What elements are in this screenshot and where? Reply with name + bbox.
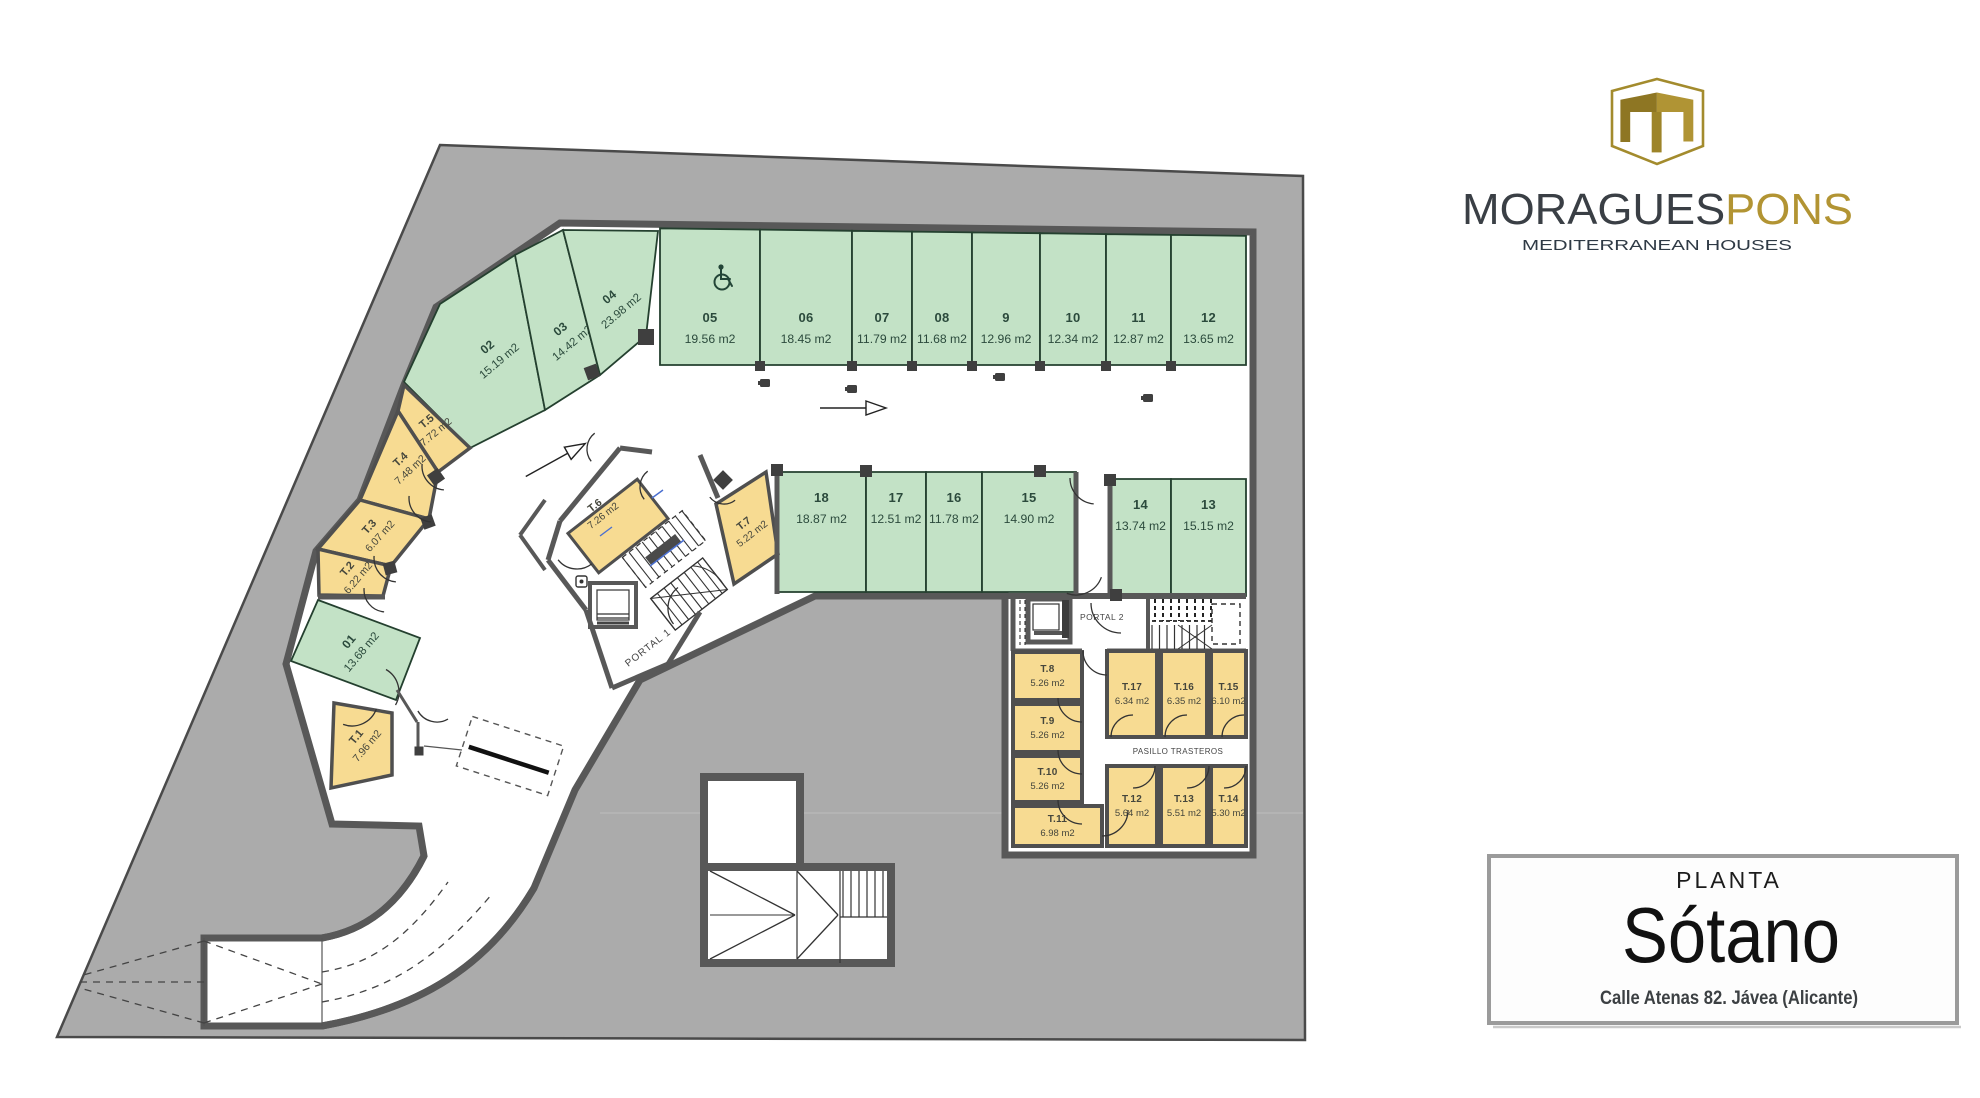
svg-text:T.8: T.8 (1040, 664, 1054, 675)
svg-text:6.34 m2: 6.34 m2 (1115, 696, 1149, 707)
svg-text:5.51 m2: 5.51 m2 (1167, 808, 1201, 819)
svg-text:T.9: T.9 (1040, 716, 1054, 727)
svg-text:T.12: T.12 (1122, 794, 1142, 805)
svg-text:11.68 m2: 11.68 m2 (917, 332, 967, 346)
svg-text:5.64 m2: 5.64 m2 (1115, 808, 1149, 819)
svg-text:11: 11 (1131, 310, 1145, 325)
svg-text:14: 14 (1133, 497, 1149, 512)
svg-text:5.30 m2: 5.30 m2 (1211, 808, 1245, 819)
svg-text:15.15 m2: 15.15 m2 (1183, 519, 1234, 533)
svg-text:16: 16 (946, 490, 961, 505)
svg-text:13.65 m2: 13.65 m2 (1183, 332, 1234, 346)
svg-text:T.14: T.14 (1218, 794, 1238, 805)
svg-text:6.35 m2: 6.35 m2 (1167, 696, 1201, 707)
svg-text:18.87 m2: 18.87 m2 (796, 512, 847, 526)
svg-text:T.10: T.10 (1037, 767, 1057, 778)
svg-text:9: 9 (1002, 310, 1010, 325)
svg-text:T.16: T.16 (1174, 682, 1194, 693)
svg-text:08: 08 (934, 310, 949, 325)
svg-text:13: 13 (1201, 497, 1216, 512)
svg-text:12.51 m2: 12.51 m2 (871, 512, 922, 526)
svg-text:T.13: T.13 (1174, 794, 1194, 805)
svg-text:17: 17 (888, 490, 903, 505)
svg-text:Calle Atenas 82. Jávea (Alican: Calle Atenas 82. Jávea (Alicante) (1600, 988, 1858, 1009)
svg-text:11.78 m2: 11.78 m2 (929, 512, 979, 526)
svg-text:19.56 m2: 19.56 m2 (685, 332, 736, 346)
svg-text:05: 05 (702, 310, 717, 325)
svg-text:PORTAL 2: PORTAL 2 (1080, 612, 1124, 622)
svg-text:14.90 m2: 14.90 m2 (1004, 512, 1055, 526)
svg-text:13.74 m2: 13.74 m2 (1115, 519, 1166, 533)
svg-text:12.34 m2: 12.34 m2 (1048, 332, 1099, 346)
svg-text:5.26 m2: 5.26 m2 (1030, 678, 1064, 689)
svg-text:06: 06 (798, 310, 813, 325)
svg-text:MEDITERRANEAN HOUSES: MEDITERRANEAN HOUSES (1522, 238, 1792, 254)
svg-text:18: 18 (814, 490, 829, 505)
svg-text:18.45 m2: 18.45 m2 (781, 332, 832, 346)
svg-text:12: 12 (1201, 310, 1216, 325)
svg-text:6.98 m2: 6.98 m2 (1040, 828, 1074, 839)
svg-text:12.87 m2: 12.87 m2 (1113, 332, 1164, 346)
svg-text:PLANTA: PLANTA (1676, 867, 1782, 893)
svg-text:07: 07 (874, 310, 889, 325)
svg-text:11.79 m2: 11.79 m2 (857, 332, 907, 346)
svg-text:MORAGUESPONS: MORAGUESPONS (1462, 185, 1853, 234)
svg-text:PASILLO TRASTEROS: PASILLO TRASTEROS (1133, 747, 1224, 756)
svg-text:10: 10 (1065, 310, 1080, 325)
svg-text:6.10 m2: 6.10 m2 (1211, 696, 1245, 707)
svg-text:Sótano: Sótano (1622, 891, 1840, 979)
svg-text:15: 15 (1021, 490, 1036, 505)
svg-text:12.96 m2: 12.96 m2 (981, 332, 1032, 346)
svg-text:T.17: T.17 (1122, 682, 1142, 693)
svg-text:5.26 m2: 5.26 m2 (1030, 730, 1064, 741)
svg-text:T.15: T.15 (1218, 682, 1238, 693)
svg-text:5.26 m2: 5.26 m2 (1030, 781, 1064, 792)
